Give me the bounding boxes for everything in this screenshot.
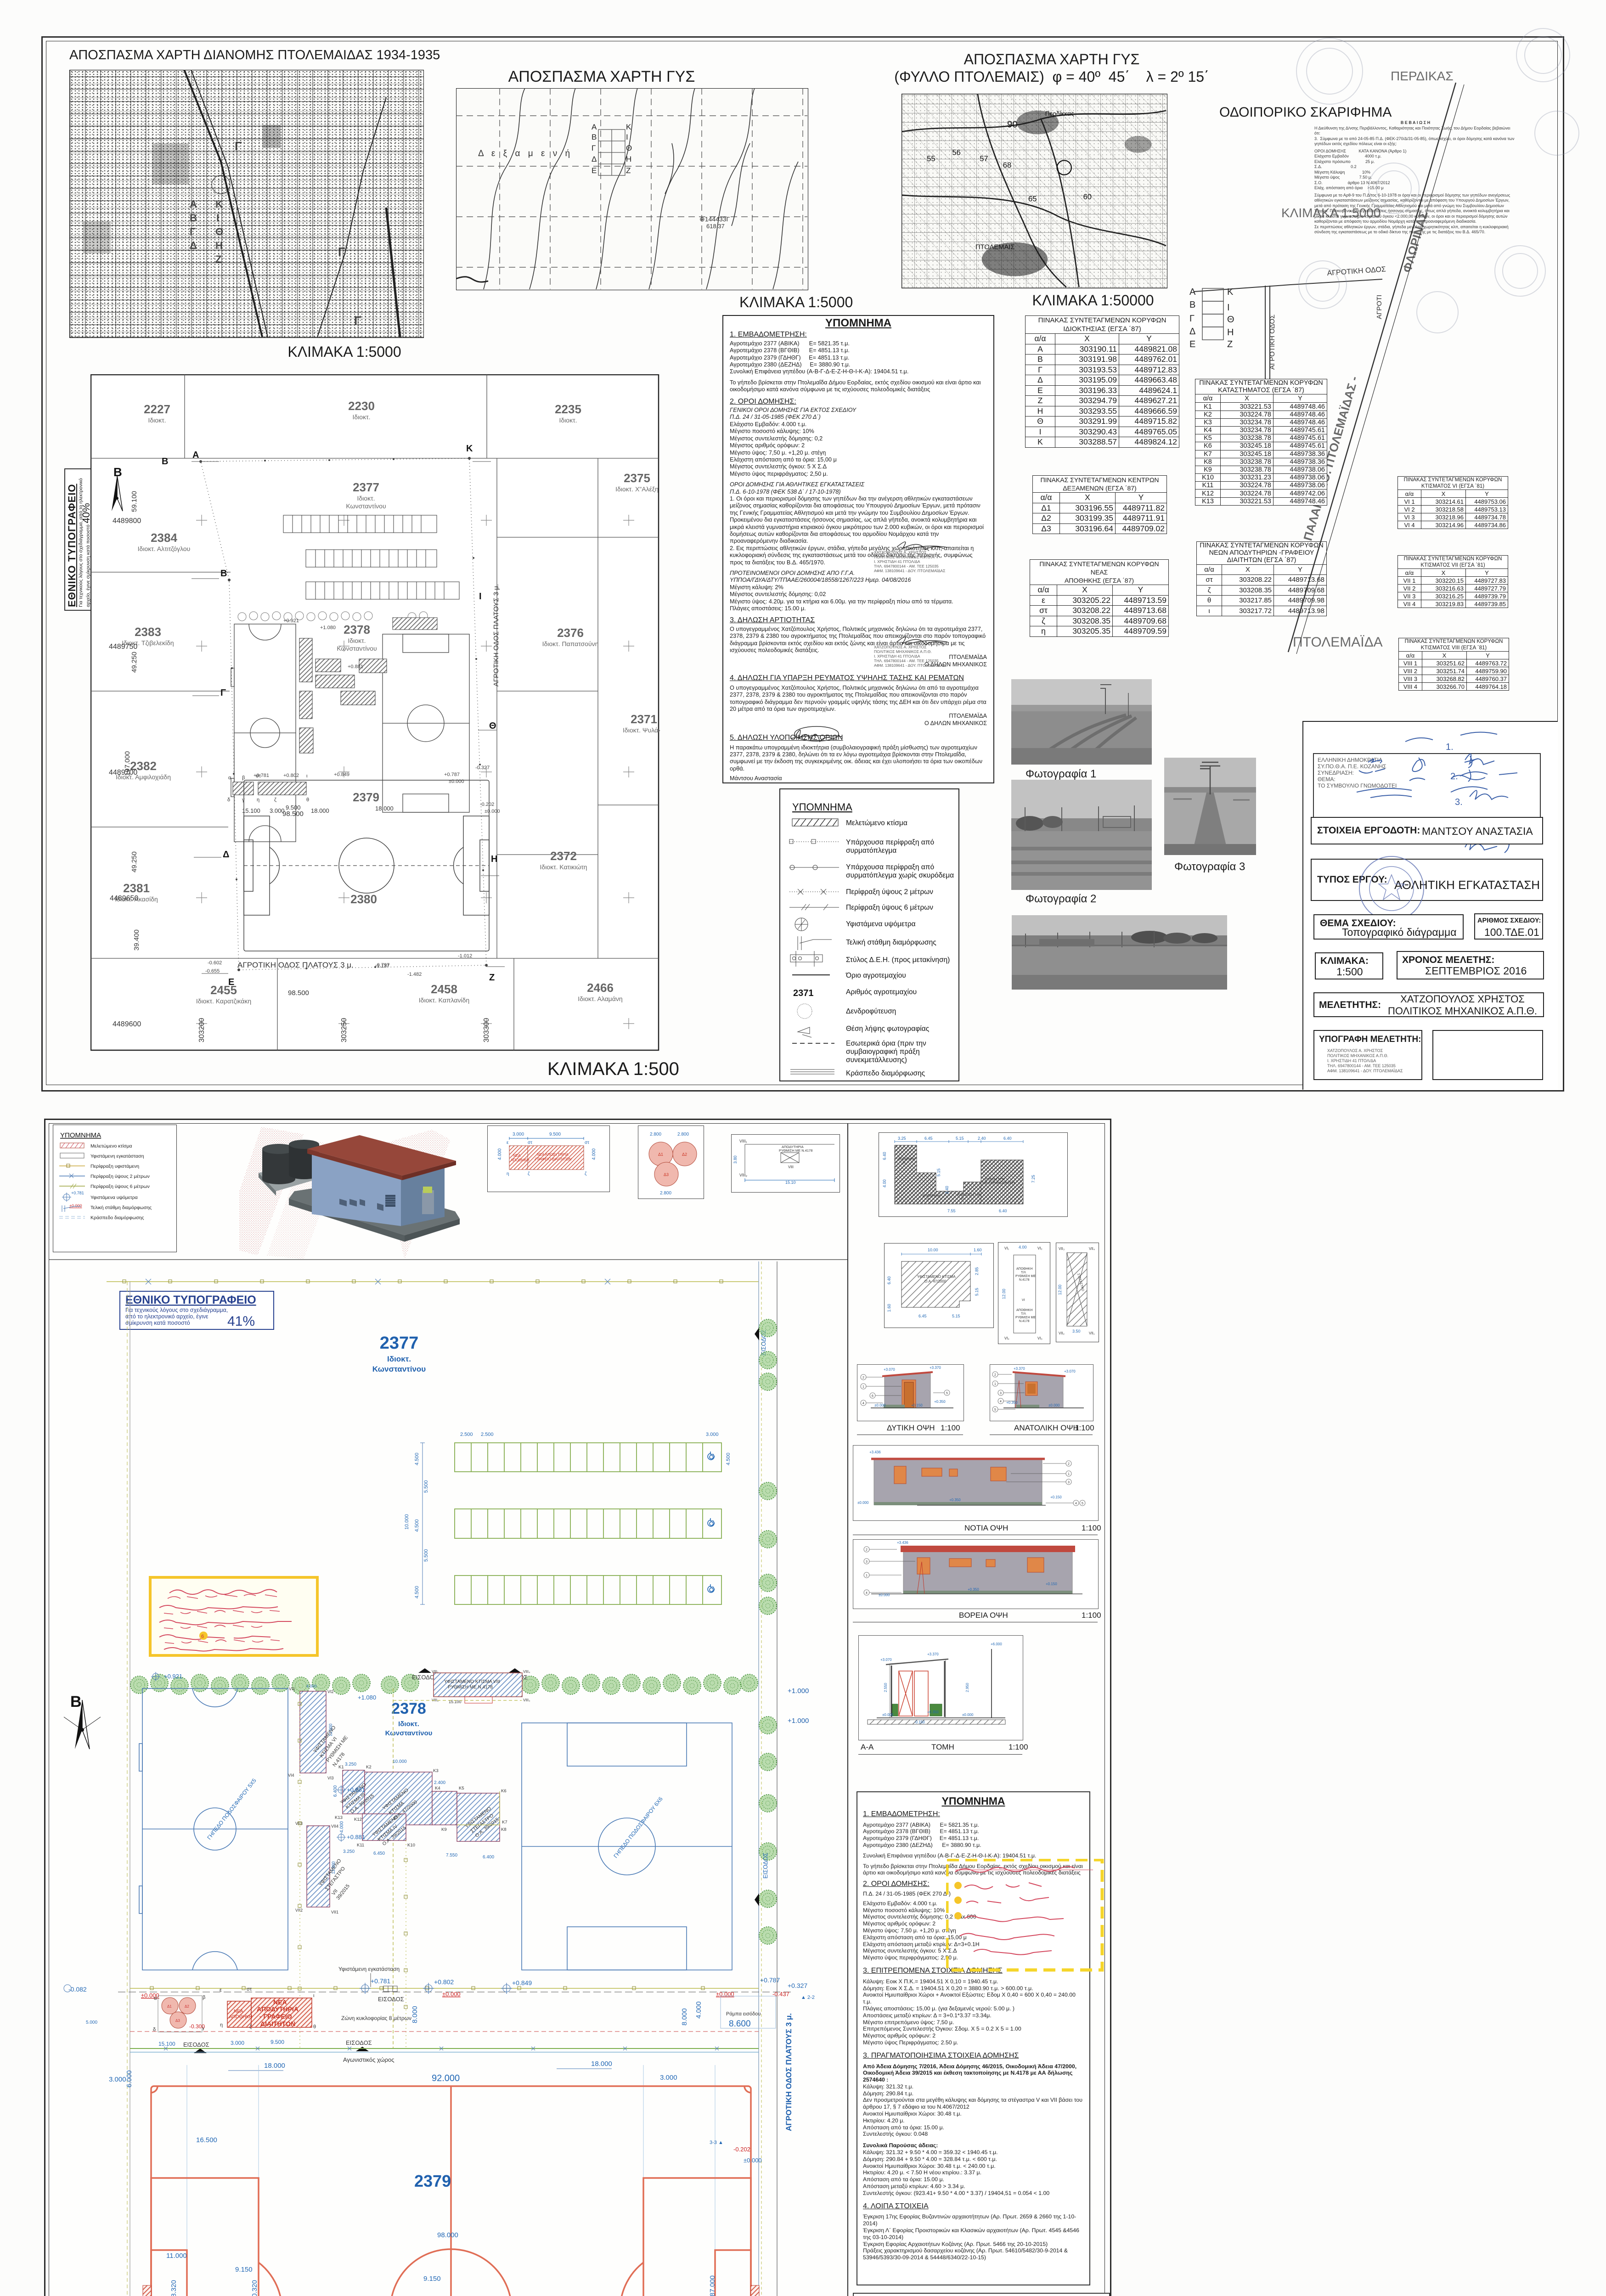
svg-text:Ιδιοκτ. Παπατσούνη: Ιδιοκτ. Παπατσούνη [542,640,599,647]
svg-text:Κ7: Κ7 [502,1820,507,1825]
svg-text:303250: 303250 [340,1018,348,1042]
svg-text:ΓΗΠΕΔΟ ΠΟΔΟΣΦΑΙΡΟΥ 6Χ6: ΓΗΠΕΔΟ ΠΟΔΟΣΦΑΙΡΟΥ 6Χ6 [612,1795,664,1859]
svg-text:6: 6 [201,1634,204,1639]
svg-text:90: 90 [1007,120,1018,130]
svg-text:2: 2 [862,1376,864,1379]
svg-text:σμίκρυνση κατά ποσοστό: σμίκρυνση κατά ποσοστό [125,1320,190,1326]
svg-text:4.000: 4.000 [339,1821,344,1833]
svg-text:ΓΗΠΕΔΟ ΠΟΔΟΣΦΑΙΡΟΥ 5Χ5: ΓΗΠΕΔΟ ΠΟΔΟΣΦΑΙΡΟΥ 5Χ5 [206,1777,258,1841]
svg-text:12.00: 12.00 [1058,1284,1062,1295]
svg-text:Η: Η [1227,327,1234,338]
svg-text:VIII₃: VIII₃ [523,1698,530,1702]
svg-text:+0.781: +0.781 [371,1977,390,1985]
svg-text:2379: 2379 [353,790,379,804]
svg-text:+1.080: +1.080 [358,1694,376,1701]
svg-text:Υπάρχουσα περίφραξη από: Υπάρχουσα περίφραξη από [846,838,934,846]
svg-text:Ιδιοκτ. Κατικιώτη: Ιδιοκτ. Κατικιώτη [540,863,587,871]
svg-text:από το ηλεκτρονικό αρχείο, έγι: από το ηλεκτρονικό αρχείο, έγινε [125,1313,208,1320]
svg-text:Δ: Δ [223,850,229,860]
svg-text:10.000: 10.000 [393,1759,407,1764]
svg-text:4489600: 4489600 [113,1020,141,1028]
svg-text:±0.000: ±0.000 [744,2157,762,2164]
svg-text:3-3 ▲: 3-3 ▲ [710,2140,723,2145]
svg-text:Ιδιοκτ. Καρατζικάκη: Ιδιοκτ. Καρατζικάκη [196,997,251,1005]
svg-text:5.15: 5.15 [975,1288,979,1296]
svg-text:5: 5 [1082,1502,1083,1505]
svg-text:Α: Α [192,450,199,460]
svg-text:618.37: 618.37 [706,223,725,230]
svg-text:ΕΙΣΟΔΟΣ: ΕΙΣΟΔΟΣ [346,2039,372,2046]
svg-text:4.500: 4.500 [414,1519,420,1532]
svg-text:2235: 2235 [555,402,581,416]
svg-text:VI₃: VI₃ [1037,1336,1042,1340]
svg-text:2376: 2376 [557,626,584,640]
svg-text:Β: Β [162,456,168,467]
svg-text:Εσωτερικά όρια (πριν την: Εσωτερικά όρια (πριν την [846,1040,926,1047]
svg-text:5.15: 5.15 [952,1314,960,1318]
svg-text:4.000: 4.000 [306,1684,317,1688]
svg-text:-0.202: -0.202 [733,2146,750,2153]
svg-text:1: 1 [866,1574,868,1577]
svg-text:3.000: 3.000 [109,2076,126,2083]
svg-text:ΑΦΜ. 138109641 - ΔΟΥ. ΠΤΟΛΕΜΑΪ: ΑΦΜ. 138109641 - ΔΟΥ. ΠΤΟΛΕΜΑΪΔΑΣ [874,568,945,573]
svg-text:6.400: 6.400 [333,1785,338,1797]
svg-text:Κράσπεδο διαμόρφωσης: Κράσπεδο διαμόρφωσης [846,1069,925,1077]
svg-text:2379: 2379 [414,2172,451,2190]
svg-text:Β: Β [220,568,227,579]
svg-text:ΝΕΑ: ΝΕΑ [234,2009,243,2014]
svg-text:4: 4 [1000,1400,1002,1403]
svg-text:VIII₁: VIII₁ [432,1670,439,1674]
svg-text:9.150: 9.150 [235,2266,253,2273]
svg-text:5.000: 5.000 [86,2020,97,2025]
svg-text:2377: 2377 [380,1334,419,1353]
svg-text:Κ3: Κ3 [433,1768,439,1773]
svg-text:2466: 2466 [587,981,614,995]
svg-text:4.500: 4.500 [414,1586,420,1598]
svg-text:Β: Β [1189,300,1195,310]
svg-text:Κ12: Κ12 [354,1817,362,1822]
svg-text:3.: 3. [1455,797,1463,807]
svg-text:57: 57 [980,154,988,163]
svg-text:18.000: 18.000 [591,2060,612,2068]
svg-text:+3.370: +3.370 [930,1366,941,1370]
svg-text:Περίφραξη ύψους 2 μέτρων: Περίφραξη ύψους 2 μέτρων [846,888,933,896]
svg-text:ΕΘΝΙΚΟ ΤΥΠΟΓΡΑΦΕΙΟ: ΕΘΝΙΚΟ ΤΥΠΟΓΡΑΦΕΙΟ [125,1294,256,1306]
svg-text:±0.000: ±0.000 [1048,1403,1060,1407]
svg-text:+1.000: +1.000 [788,1687,809,1695]
svg-text:2377: 2377 [353,480,379,494]
svg-text:Κωνσταντίνου: Κωνσταντίνου [337,645,377,652]
svg-text:±0.000: ±0.000 [442,1991,461,1998]
svg-text:Δ2: Δ2 [185,2004,189,2009]
svg-text:+0.150: +0.150 [1050,1495,1062,1499]
svg-text:+0.849: +0.849 [334,772,349,777]
svg-text:+3.370: +3.370 [1014,1367,1025,1371]
svg-text:11.000: 11.000 [166,2252,187,2260]
svg-text:7.55: 7.55 [947,1209,956,1213]
svg-text:Ν.4178: Ν.4178 [1019,1278,1030,1282]
svg-text:±0.000: ±0.000 [874,1403,886,1407]
svg-text:Ζ: Ζ [215,253,221,265]
svg-text:Ράμπα εισόδου: Ράμπα εισόδου [726,2011,761,2017]
svg-text:+3.370: +3.370 [927,1652,939,1656]
svg-text:Κωνσταντίνου: Κωνσταντίνου [385,1729,433,1737]
svg-text:7.550: 7.550 [446,1853,457,1858]
svg-text:Κωνσταντίνου: Κωνσταντίνου [372,1365,426,1373]
svg-text:Κ8: Κ8 [501,1827,507,1832]
svg-text:ΙΙΙ: ΙΙΙ [902,1160,905,1165]
svg-text:2: 2 [994,1373,996,1377]
svg-text:Θέση λήψης φωτογραφίας: Θέση λήψης φωτογραφίας [846,1025,929,1033]
svg-text:ΤΗΛ. 6947800144 - ΑΜ. ΤΕΕ 1250: ΤΗΛ. 6947800144 - ΑΜ. ΤΕΕ 125035 [874,564,939,568]
svg-text:±0.000: ±0.000 [882,1713,894,1717]
svg-text:ΝΕΑ: ΝΕΑ [273,1998,287,2006]
svg-text:ι: ι [313,1993,315,1998]
svg-text:12.000: 12.000 [331,1861,336,1874]
svg-text:+0.802: +0.802 [283,773,299,778]
svg-text:+1.000: +1.000 [788,1717,809,1725]
svg-text:39.400: 39.400 [133,929,141,951]
svg-text:Ζ: Ζ [489,973,495,983]
svg-text:η: η [257,797,259,803]
svg-text:5.500: 5.500 [423,1480,429,1493]
svg-text:ΥΦΙΣΤΑΜΕΝΟ ΚΤΙΣΜΑ: ΥΦΙΣΤΑΜΕΝΟ ΚΤΙΣΜΑ [917,1275,956,1279]
svg-text:3.250: 3.250 [343,1849,355,1854]
svg-text:+0.787: +0.787 [444,772,460,777]
svg-text:ΙΙ: ΙΙ [961,1196,963,1200]
svg-text:Περδίκκας: Περδίκκας [1045,110,1074,117]
svg-text:4: 4 [866,1592,868,1595]
svg-text:16.500: 16.500 [196,2136,217,2144]
svg-text:2.40: 2.40 [978,1136,986,1141]
svg-text:±0.000: ±0.000 [962,1713,974,1717]
svg-text:6.400: 6.400 [483,1855,494,1860]
svg-text:γ: γ [242,797,245,803]
svg-text:10.00: 10.00 [928,1248,938,1252]
svg-text:ΜΕ ΚΕΡΑΜΟΣΚΕΠΗ: ΜΕ ΚΕΡΑΜΟΣΚΕΠΗ [982,1181,1014,1185]
svg-text:1.60: 1.60 [974,1248,982,1252]
svg-text:VI2: VI2 [327,1689,334,1694]
svg-text:±0.000: ±0.000 [449,779,464,784]
svg-text:4: 4 [1075,1502,1077,1505]
svg-text:68: 68 [1003,161,1011,169]
svg-text:Ιδιοκτ.: Ιδιοκτ. [148,416,166,424]
svg-text:2.500: 2.500 [481,1432,494,1437]
svg-text:3: 3 [1000,1392,1002,1395]
svg-text:2227: 2227 [144,402,170,416]
svg-text:Όριο αγροτεμαχίου: Όριο αγροτεμαχίου [845,972,906,979]
svg-text:ΕΙΣΟΔΟΣ: ΕΙΣΟΔΟΣ [762,1852,769,1879]
svg-text:+0.881: +0.881 [347,1834,365,1840]
svg-text:15.100: 15.100 [158,2041,175,2047]
svg-text:-0.202: -0.202 [480,802,494,807]
svg-text:Μελετώμενο κτίσμα: Μελετώμενο κτίσμα [846,819,907,827]
svg-text:55: 55 [927,154,935,163]
svg-text:±0.000: ±0.000 [879,1593,890,1597]
svg-text:6.45: 6.45 [919,1314,927,1318]
svg-text:60: 60 [1083,192,1092,201]
svg-text:ΕΙΣΟΔΟΣ: ΕΙΣΟΔΟΣ [183,2041,209,2048]
svg-text:197.000: 197.000 [124,751,131,776]
svg-text:συρματόπλεγμα χωρίς σκυρόδεμα: συρματόπλεγμα χωρίς σκυρόδεμα [846,872,954,879]
svg-text:+0.781: +0.781 [254,773,269,778]
svg-text:+0.787: +0.787 [760,1976,780,1984]
svg-text:στ: στ [247,1986,252,1992]
svg-text:±0.000: ±0.000 [716,1991,734,1998]
svg-text:ΑΠΟΘΗΚΗ: ΑΠΟΘΗΚΗ [1016,1309,1032,1312]
svg-text:Θ: Θ [626,144,632,152]
svg-text:2.400: 2.400 [434,1780,445,1785]
svg-text:+3.070: +3.070 [884,1367,895,1372]
svg-text:Κ13: Κ13 [335,1815,343,1820]
svg-text:2372: 2372 [550,849,577,863]
svg-text:Ι: Ι [479,591,482,602]
svg-text:2: 2 [1068,1463,1070,1466]
svg-text:2384: 2384 [151,531,177,545]
svg-text:2380: 2380 [350,892,377,906]
svg-text:VI₄: VI₄ [1004,1336,1009,1340]
svg-text:49.250: 49.250 [130,652,138,673]
svg-text:VII4: VII4 [331,1824,338,1829]
svg-text:-1.137: -1.137 [375,963,389,969]
svg-text:+1.080: +1.080 [320,625,336,630]
svg-text:Η: Η [215,240,223,251]
svg-text:Τ/Λ: Τ/Λ [1021,1312,1026,1316]
svg-text:9.500: 9.500 [270,2039,284,2045]
svg-text:4489750: 4489750 [109,643,137,651]
svg-text:+3.070: +3.070 [1064,1369,1076,1373]
svg-text:+0.881: +0.881 [348,664,363,670]
svg-text:Β: Β [592,133,597,141]
svg-text:4489800: 4489800 [113,517,141,525]
svg-text:β: β [242,775,245,781]
svg-text:Β: Β [190,212,197,224]
svg-text:10.000: 10.000 [404,1514,410,1530]
svg-text:ΠΤΟΛΕΜΑΙΣ: ΠΤΟΛΕΜΑΙΣ [975,244,1014,251]
svg-text:1.60: 1.60 [887,1304,891,1312]
svg-text:Κ: Κ [1227,287,1234,297]
svg-text:Θ: Θ [215,226,223,237]
svg-text:Ιδιοκτ.: Ιδιοκτ. [357,495,375,502]
svg-text:4.00: 4.00 [882,1179,887,1187]
svg-text:Α: Α [190,198,197,210]
svg-text:Κ10: Κ10 [407,1843,415,1848]
svg-text:6.40: 6.40 [1003,1136,1012,1141]
svg-text:Β: Β [113,465,122,479]
svg-text:ΡΥΘΜΙΣΗ ΜΕ: ΡΥΘΜΙΣΗ ΜΕ [1015,1316,1036,1319]
svg-text:Ιδιοκτ. Καπλανίδη: Ιδιοκτ. Καπλανίδη [419,996,469,1004]
svg-text:2371: 2371 [631,712,657,726]
svg-text:+6.000: +6.000 [991,1642,1002,1646]
svg-text:40.320: 40.320 [251,2280,259,2296]
svg-text:Ζ: Ζ [626,166,631,175]
svg-text:Α: Α [592,123,597,131]
svg-text:2383: 2383 [135,625,161,639]
svg-text:8.000: 8.000 [681,2008,688,2026]
svg-text:ΤΗΛ. 6947800144 - ΑΜ. ΤΕΕ 1250: ΤΗΛ. 6947800144 - ΑΜ. ΤΕΕ 125035 [874,658,939,663]
svg-text:Γ: Γ [220,688,226,698]
svg-text:-0.655: -0.655 [205,968,220,974]
svg-text:Κ1: Κ1 [338,1765,344,1770]
svg-text:Για τεχνικούς λόγους στο σ: Για τεχνικούς λόγους στο σχεδιάγραμμα, [125,1307,228,1313]
svg-text:ΑΓΡΟΤΙΚΗ ΟΔΟΣ ΠΛΑΤΟΥΣ 3 μ.: ΑΓΡΟΤΙΚΗ ΟΔΟΣ ΠΛΑΤΟΥΣ 3 μ. [492,584,500,687]
svg-text:Υφιστάμενα υψόμετρα: Υφιστάμενα υψόμετρα [846,920,916,928]
svg-text:VI₂: VI₂ [1037,1246,1042,1250]
svg-text:Τ/Λ: Τ/Λ [1021,1271,1026,1274]
svg-text:Ζώνη κυκλοφορίας 8 μέτρων: Ζώνη κυκλοφορίας 8 μέτρων [341,2015,411,2021]
svg-text:Ι: Ι [626,133,628,141]
svg-text:Δ1: Δ1 [167,2004,172,2009]
svg-text:2230: 2230 [348,399,375,413]
svg-text:6.450: 6.450 [373,1851,385,1856]
svg-text:2.950: 2.950 [965,1683,969,1692]
svg-text:Ιδιοκτ.: Ιδιοκτ. [348,637,366,644]
svg-text:+0.350: +0.350 [949,1498,961,1502]
svg-text:98.500: 98.500 [288,989,309,997]
svg-text:β: β [203,1995,205,2000]
svg-text:92.000: 92.000 [432,2073,460,2083]
svg-text:VII₃: VII₃ [1059,1247,1065,1251]
svg-text:ζ: ζ [249,2024,252,2030]
svg-text:VII₂: VII₂ [1059,1331,1065,1335]
svg-text:-0.327: -0.327 [475,765,490,771]
svg-text:2375: 2375 [624,471,650,485]
svg-text:56: 56 [952,148,960,157]
svg-text:Τελική στάθμη διαμόρφωσης: Τελική στάθμη διαμόρφωσης [846,939,936,946]
svg-text:18.000: 18.000 [264,2062,285,2070]
svg-text:Γ: Γ [190,226,196,237]
svg-text:3.000: 3.000 [231,2040,244,2046]
svg-text:η: η [220,2022,223,2028]
svg-text:Ε: Ε [228,977,234,987]
svg-text:±0.000: ±0.000 [485,809,500,814]
svg-text:Γ: Γ [354,314,361,327]
svg-text:2378: 2378 [391,1700,426,1717]
svg-text:5.15: 5.15 [936,1168,941,1176]
svg-text:Αριθμός αγροτεμαχίου: Αριθμός αγροτεμαχίου [846,988,917,996]
svg-text:6.40: 6.40 [882,1152,887,1160]
svg-text:Η: Η [626,155,631,163]
svg-text:1: 1 [994,1383,996,1386]
svg-text:5.500: 5.500 [423,1549,429,1562]
svg-text:98.500: 98.500 [282,810,304,818]
svg-text:+0.350: +0.350 [934,1400,946,1404]
svg-text:ΑΓΡΟΤΙΚΗ ΟΔΟΣ ΠΛΑΤΟΥΣ 3 μ.: ΑΓΡΟΤΙΚΗ ΟΔΟΣ ΠΛΑΤΟΥΣ 3 μ. [237,961,354,969]
svg-text:ΠΟΛΙΤΙΚΟΣ ΜΗΧΑΝΙΚΟΣ Α.Π.Θ.: ΠΟΛΙΤΙΚΟΣ ΜΗΧΑΝΙΚΟΣ Α.Π.Θ. [874,649,932,654]
svg-text:Ι. ΧΡΗΣΤΙΔΗ 41 ΠΤΟΛ/ΔΑ: Ι. ΧΡΗΣΤΙΔΗ 41 ΠΤΟΛ/ΔΑ [874,654,920,658]
svg-text:συμβαιογραφική πράξη: συμβαιογραφική πράξη [846,1048,920,1056]
svg-text:+0.802: +0.802 [434,1978,454,1986]
svg-text:ΙΙ: ΙΙ [927,1197,929,1201]
svg-text:4.500: 4.500 [726,1452,731,1465]
svg-text:Ιδιοκτ.: Ιδιοκτ. [353,413,371,421]
svg-text:6.000: 6.000 [125,2070,133,2088]
svg-text:98.000: 98.000 [437,2231,458,2239]
svg-text:12.000: 12.000 [328,1723,333,1736]
svg-text:4: 4 [862,1402,864,1405]
svg-text:συρματόπλεγμα: συρματόπλεγμα [846,847,896,855]
svg-text:Δενδροφύτευση: Δενδροφύτευση [846,1007,896,1015]
svg-text:Κ2: Κ2 [366,1765,372,1770]
svg-text:Ι: Ι [216,212,219,224]
svg-text:Κ11: Κ11 [357,1843,364,1848]
svg-text:Κ: Κ [215,198,223,210]
svg-text:ΥΠΟΜΝΗΜΑ: ΥΠΟΜΝΗΜΑ [792,801,852,813]
svg-text:+0.150: +0.150 [911,1403,923,1407]
svg-text:2371: 2371 [793,988,814,998]
svg-text:δ: δ [227,797,230,803]
svg-text:θ: θ [306,797,309,803]
svg-text:7.25: 7.25 [1031,1175,1036,1183]
svg-text:α: α [228,775,231,781]
svg-text:Γ: Γ [1189,314,1195,324]
svg-text:2.: 2. [1450,771,1458,782]
svg-text:VI3: VI3 [327,1776,334,1780]
svg-text:9.500: 9.500 [286,804,301,811]
svg-text:2.550: 2.550 [884,1683,888,1692]
svg-text:VI: VI [1022,1299,1025,1302]
svg-text:+3.436: +3.436 [869,1450,881,1454]
svg-text:-0.437: -0.437 [772,1991,789,1998]
svg-text:3.50: 3.50 [1072,1329,1081,1334]
svg-text:Γ: Γ [592,144,596,152]
svg-text:Θ: Θ [489,721,496,731]
svg-text:18.000: 18.000 [311,807,329,814]
svg-text:1: 1 [862,1385,864,1389]
svg-text:±0.000: ±0.000 [857,1501,869,1505]
svg-text:ΑΓΡΟΤΙΚΗ ΟΔΟΣ ΠΛΑΤΟΥΣ 3 μ.: ΑΓΡΟΤΙΚΗ ΟΔΟΣ ΠΛΑΤΟΥΣ 3 μ. [784,2013,793,2131]
svg-text:Κ5: Κ5 [459,1786,464,1791]
svg-text:VI₁: VI₁ [1004,1246,1009,1250]
svg-text:2.85: 2.85 [975,1267,979,1275]
svg-text:ζ: ζ [274,797,276,803]
svg-text:+0.881: +0.881 [347,1786,365,1793]
svg-text:3.000: 3.000 [706,1432,719,1437]
svg-text:Στύλος Δ.Ε.Η. (προς μετακίνηση: Στύλος Δ.Ε.Η. (προς μετακίνηση) [846,956,950,964]
svg-text:5: 5 [946,1392,948,1395]
svg-text:3.000: 3.000 [660,2074,677,2082]
svg-text:Ζ: Ζ [1227,339,1233,349]
svg-text:-0.300: -0.300 [189,2023,205,2030]
svg-text:-1.012: -1.012 [458,953,472,959]
svg-text:Ιδιοκτ.: Ιδιοκτ. [559,416,577,424]
svg-text:VII1: VII1 [331,1910,338,1914]
svg-text:ΥΦΙΣΤΑΜΕΝΟ ΚΤΙΣΜΑ VIII: ΥΦΙΣΤΑΜΕΝΟ ΚΤΙΣΜΑ VIII [444,1679,500,1684]
svg-text:87.000: 87.000 [709,2275,716,2296]
svg-text:2.40: 2.40 [945,1186,949,1194]
svg-text:-1.482: -1.482 [407,972,422,977]
svg-text:3.000: 3.000 [270,807,285,814]
svg-text:Δ: Δ [592,155,597,163]
svg-text:9.150: 9.150 [423,2275,441,2283]
svg-text:ΑΦΜ. 138109641 - ΔΟΥ. ΠΤΟΛΕΜΑΪ: ΑΦΜ. 138109641 - ΔΟΥ. ΠΤΟΛΕΜΑΪΔΑΣ [874,663,945,668]
svg-text:ΑΠΟΘΗΚΗ: ΑΠΟΘΗΚΗ [229,2015,253,2020]
svg-text:Δ: Δ [190,240,197,251]
svg-text:Ιδιοκτ.: Ιδιοκτ. [398,1720,419,1728]
svg-text:6.40: 6.40 [999,1209,1007,1213]
svg-text:Ε: Ε [1189,339,1195,349]
svg-text:Η: Η [491,854,497,864]
svg-text:ε: ε [220,1987,222,1993]
svg-text:Περίφραξη ύψους 6 μέτρων: Περίφραξη ύψους 6 μέτρων [846,904,933,912]
svg-text:Δ: Δ [1189,326,1195,337]
svg-text:1.: 1. [1446,742,1454,752]
svg-text:▲ 2-2: ▲ 2-2 [801,1995,815,2000]
svg-text:Κ6: Κ6 [501,1789,507,1794]
svg-text:2: 2 [866,1548,868,1552]
svg-text:2378: 2378 [344,623,370,636]
